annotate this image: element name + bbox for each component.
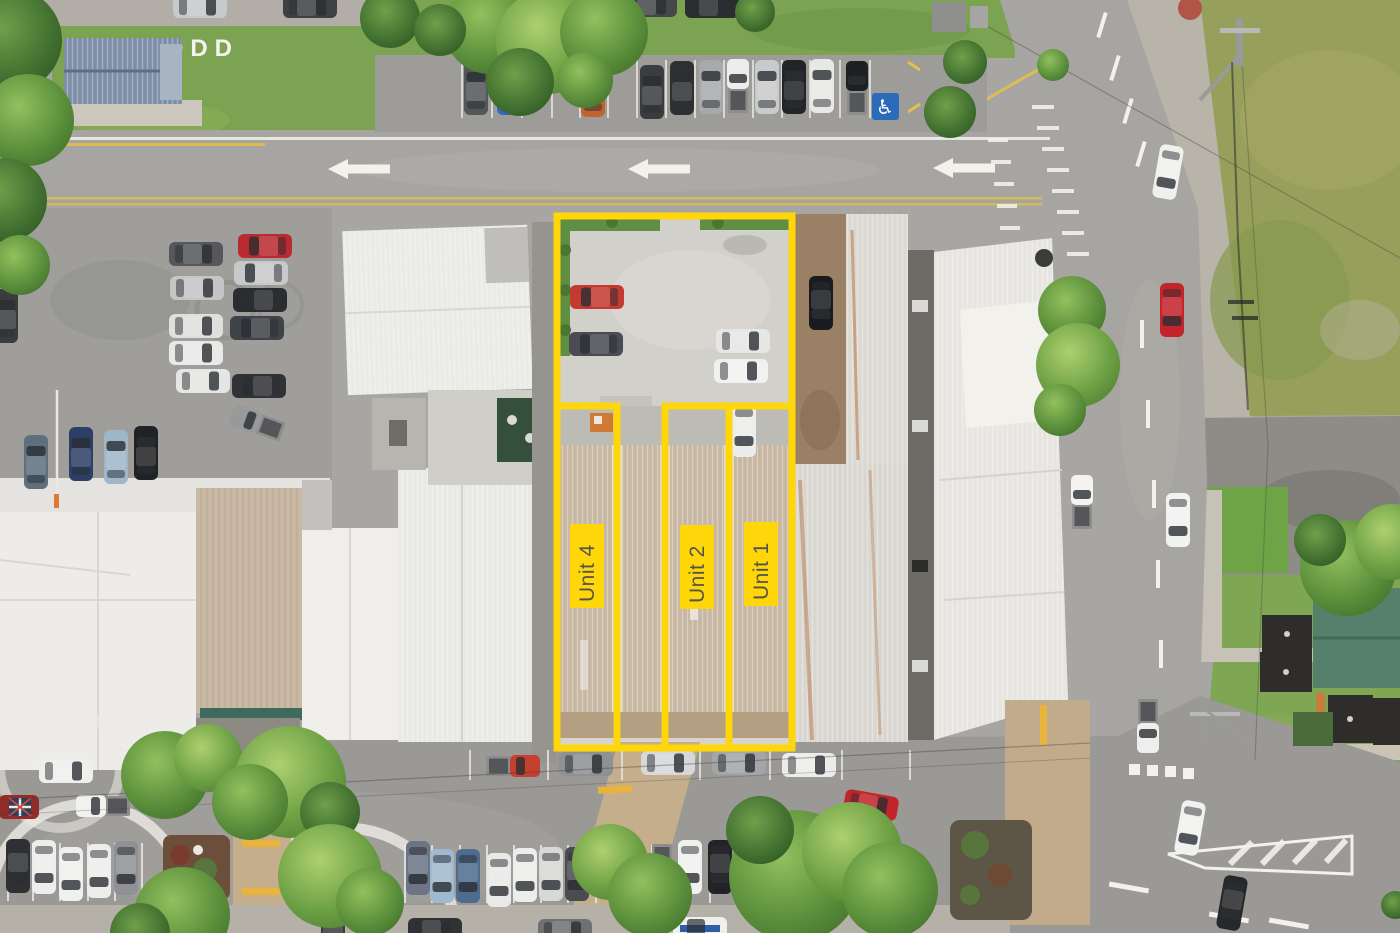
unit-1-label: Unit 1 — [750, 542, 773, 600]
aerial-photo-scene: DDD ♿ — [0, 0, 1400, 933]
unit-4-tag: Unit 4 — [570, 524, 604, 608]
upper-white-building — [342, 225, 533, 395]
alley — [532, 222, 556, 762]
unit-2-label: Unit 2 — [686, 545, 709, 603]
substation — [932, 2, 966, 32]
aerial-photo: DDD ♿ — [0, 0, 1400, 933]
unit-1-tag: Unit 1 — [744, 522, 778, 606]
tree — [414, 4, 466, 56]
disabled-parking-icon: ♿ — [876, 95, 894, 119]
unit-2-tag: Unit 2 — [680, 525, 714, 609]
unit-4-label: Unit 4 — [576, 544, 599, 602]
blue-roof-shed — [56, 38, 202, 126]
